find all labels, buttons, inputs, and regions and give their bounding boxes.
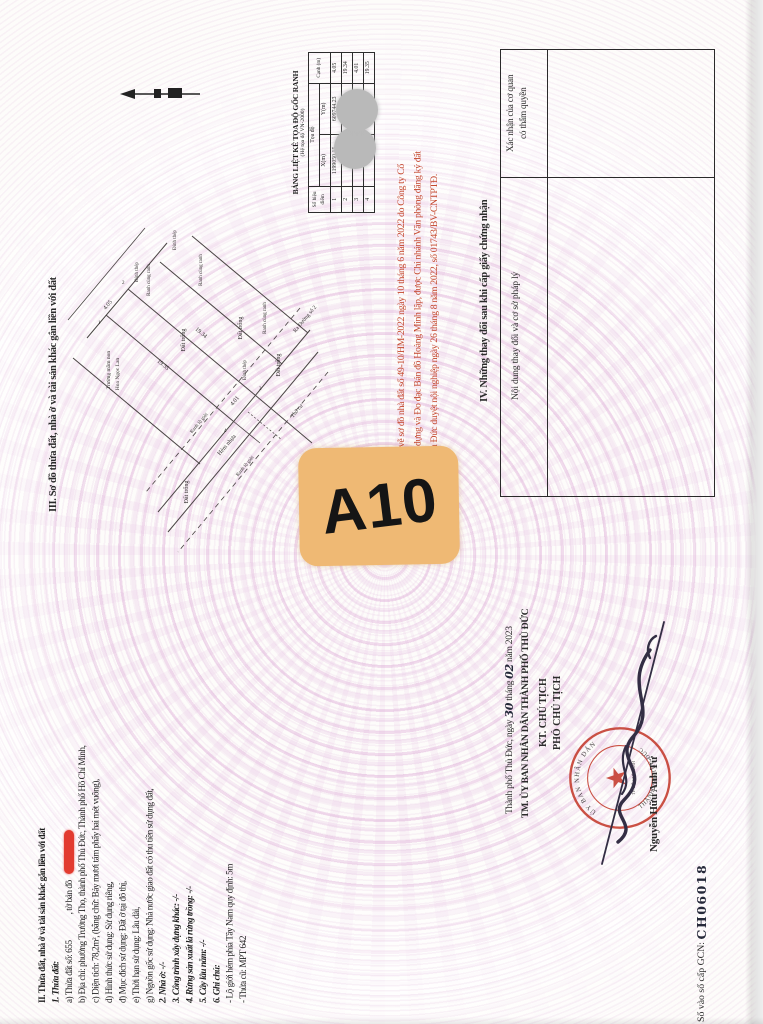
house-line: 2. Nhà ở: -/- (157, 733, 170, 1003)
cell-edge: 4.05 (331, 53, 342, 84)
dim-bottom: 4.01 (230, 395, 241, 407)
cell-edge: 19.35 (364, 53, 375, 84)
parcel-number-post: , tờ bản đồ (64, 880, 74, 914)
address-line: b) Địa chỉ: phường Trường Thọ, thành phố… (76, 733, 89, 1003)
coordinate-table-subtitle: (Hệ tọa độ VN-2000) (300, 52, 306, 213)
label-kindergarten-2: Hoa Ngọc Lan (115, 358, 121, 391)
label-dat-trong: Đất trống (183, 481, 190, 504)
label-dat-trong: Đất trống (275, 354, 282, 377)
kt-chu-tich-line: KT. CHỦ TỊCH (538, 612, 553, 814)
label-ranh-lo-gioi: Ranh lộ giới (236, 455, 256, 478)
signer-name: Nguyễn Hữu Anh Tứ (648, 640, 667, 852)
dim-left: 19.35 (156, 359, 170, 372)
certificate-page: III. Sơ đồ thửa đất, nhà ở và tài sản kh… (0, 0, 763, 1024)
place-date-line: Thành phố Thủ Đức, ngày 30 tháng 02 năm … (503, 612, 520, 814)
use-term-line: e) Thời hạn sử dụng: Lâu dài, (130, 733, 143, 1003)
parcel-number-pre: a) Thửa đất số: 655 (64, 940, 74, 1003)
photo-edge-right (745, 0, 763, 1024)
use-form-line: d) Hình thức sử dụng: Sử dụng riêng, (103, 733, 116, 1003)
notes-heading: 6. Ghi chú: (210, 733, 223, 1003)
label-dat-trong: Đất trống (237, 317, 244, 340)
red-note-line: phần Đầu tư Xây dựng và Đo đạc Bản đồ Ho… (411, 52, 428, 510)
use-origin-line: g) Nguồn gốc sử dụng: Nhà nước giao đất … (143, 733, 156, 1003)
table-divider (501, 177, 714, 178)
note-line: - Thửa cũ: MPT 642 (237, 733, 250, 1003)
section4-title: IV. Những thay đổi sau khi cấp giấy chứn… (479, 148, 499, 402)
area-line: c) Diện tích: 78,2m², (bằng chữ: Bảy mươ… (90, 733, 103, 1003)
col-x: X(m) (320, 135, 331, 187)
handwritten-day: 30 (503, 703, 516, 718)
cell-point: 1 (331, 186, 342, 212)
section4-col-content: Nội dung thay đổi và cơ sở pháp lý (510, 190, 538, 482)
cell-edge: 19.34 (342, 53, 353, 84)
red-note-line: đai thành phố Thủ Đức duyệt nội nghiệp n… (427, 52, 444, 510)
north-arrow-icon (120, 88, 200, 99)
label-tho-cu: Thổ cư (289, 402, 305, 419)
year-label: năm 2023 (504, 626, 515, 662)
photo-edge-bottom (0, 1017, 763, 1024)
label-dat-trong: Đất trống (180, 329, 187, 352)
col-point: Số hiệu điểm (309, 186, 331, 212)
red-approval-note: Chi tiết theo Bản vẽ sơ đồ nhà đất số 49… (394, 52, 446, 510)
perennial-line: 5. Cây lâu năm: -/- (197, 733, 210, 1003)
gcn-serial: Số vào sổ cấp GCN: CH06018 (694, 788, 718, 1022)
col-confirm-line1: Xác nhận của cơ quan (504, 56, 517, 170)
point-2: 2 (122, 281, 125, 286)
cell-point: 4 (364, 186, 375, 212)
section2-block: II. Thửa đất, nhà ở và tài sản khác gắn … (36, 733, 250, 1003)
label-ranh-cung-ranh: Ranh cùng ranh (199, 254, 204, 286)
redaction-blob (334, 127, 376, 169)
authority-line: TM. ỦY BAN NHÂN DÂN THÀNH PHỐ THỦ ĐỨC (520, 608, 538, 818)
note-line: - Lộ giới hẻm phía Tây Nam quy định: 5m (224, 733, 237, 1003)
label-dinh-thep: Đinh thép (173, 230, 178, 250)
place-prefix: Thành phố Thủ Đức, ngày (504, 720, 515, 814)
cell-edge: 4.01 (353, 53, 364, 84)
label-ranh-lo-gioi: Ranh lộ giới (190, 412, 210, 435)
label-dinh-thep: Đinh thép (135, 262, 140, 282)
handwritten-month: 02 (503, 664, 516, 679)
section4-col-confirm: Xác nhận của cơ quan có thẩm quyền (504, 56, 546, 170)
lot-badge-label: A10 (317, 464, 442, 549)
coordinate-table-wrapper: BẢNG LIỆT KÊ TỌA ĐỘ GỐC RANH (Hệ tọa độ … (292, 52, 402, 213)
forest-line: 4. Rừng sản xuất là rừng trồng: -/- (183, 733, 196, 1003)
use-purpose-line: đ) Mục đích sử dụng: Đất ở tại đô thị, (116, 733, 129, 1003)
label-ranh-cung-ranh: Ranh cùng ranh (263, 302, 268, 334)
section2-title: II. Thửa đất, nhà ở và tài sản khác gắn … (36, 733, 49, 1003)
lot-badge: A10 (298, 446, 460, 567)
section2-sub1: 1. Thửa đất: (49, 733, 62, 1003)
col-confirm-line2: có thẩm quyền (517, 56, 530, 170)
dim-right: 19.34 (194, 327, 208, 340)
coordinate-table-title: BẢNG LIỆT KÊ TỌA ĐỘ GỐC RANH (292, 52, 300, 213)
red-note-line: Chi tiết theo Bản vẽ sơ đồ nhà đất số 49… (394, 52, 411, 510)
month-label: tháng (504, 681, 515, 701)
parcel-sketch: Đất trống Đất trống Đất trống Đất trống … (50, 40, 330, 600)
redaction-blob (336, 89, 378, 131)
gcn-label: Số vào sổ cấp GCN: (696, 940, 707, 1022)
col-y: Y(m) (320, 83, 331, 135)
label-kindergarten-1: Trường mầm non (105, 351, 112, 390)
col-edge: Cạnh (m) (309, 53, 331, 84)
label-dinh-thep: Đinh thép (243, 360, 248, 380)
construction-line: 3. Công trình xây dựng khác: -/- (170, 733, 183, 1003)
label-ra-duong: Ra Đường số 2 (291, 304, 318, 334)
label-ranh-cung-ranh: Ranh cùng ranh (147, 264, 152, 296)
table-divider (547, 50, 548, 496)
gcn-value: CH06018 (694, 864, 709, 940)
cell-point: 2 (342, 186, 353, 212)
dim-top: 4.05 (103, 299, 114, 311)
red-marker-redaction (64, 830, 74, 874)
parcel-number-line: a) Thửa đất số: 655, tờ bản đồ (63, 733, 76, 1003)
col-coord: Tọa độ (309, 83, 320, 186)
cell-point: 3 (353, 186, 364, 212)
